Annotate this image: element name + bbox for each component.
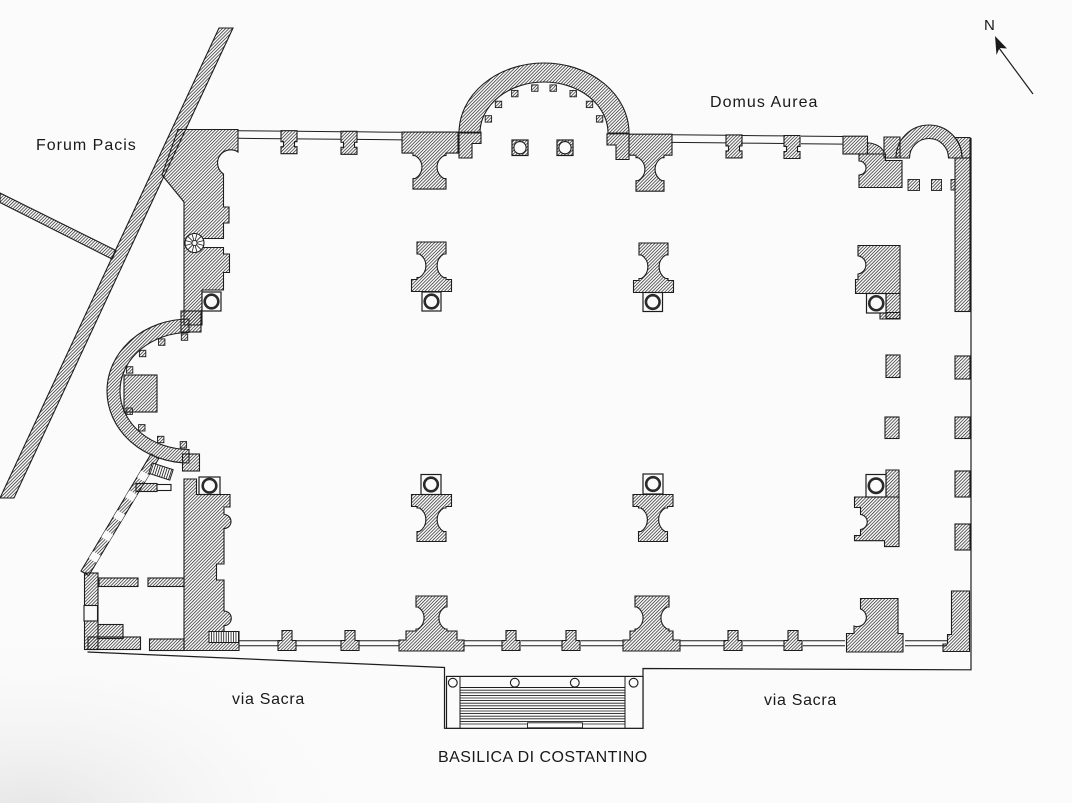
svg-text:N: N (984, 17, 995, 34)
svg-text:Domus Aurea: Domus Aurea (710, 94, 819, 111)
svg-text:BASILICA DI COSTANTINO: BASILICA DI COSTANTINO (438, 749, 648, 766)
svg-text:Forum Pacis: Forum Pacis (36, 137, 137, 154)
svg-text:via Sacra: via Sacra (764, 692, 837, 709)
svg-text:via Sacra: via Sacra (232, 691, 305, 708)
